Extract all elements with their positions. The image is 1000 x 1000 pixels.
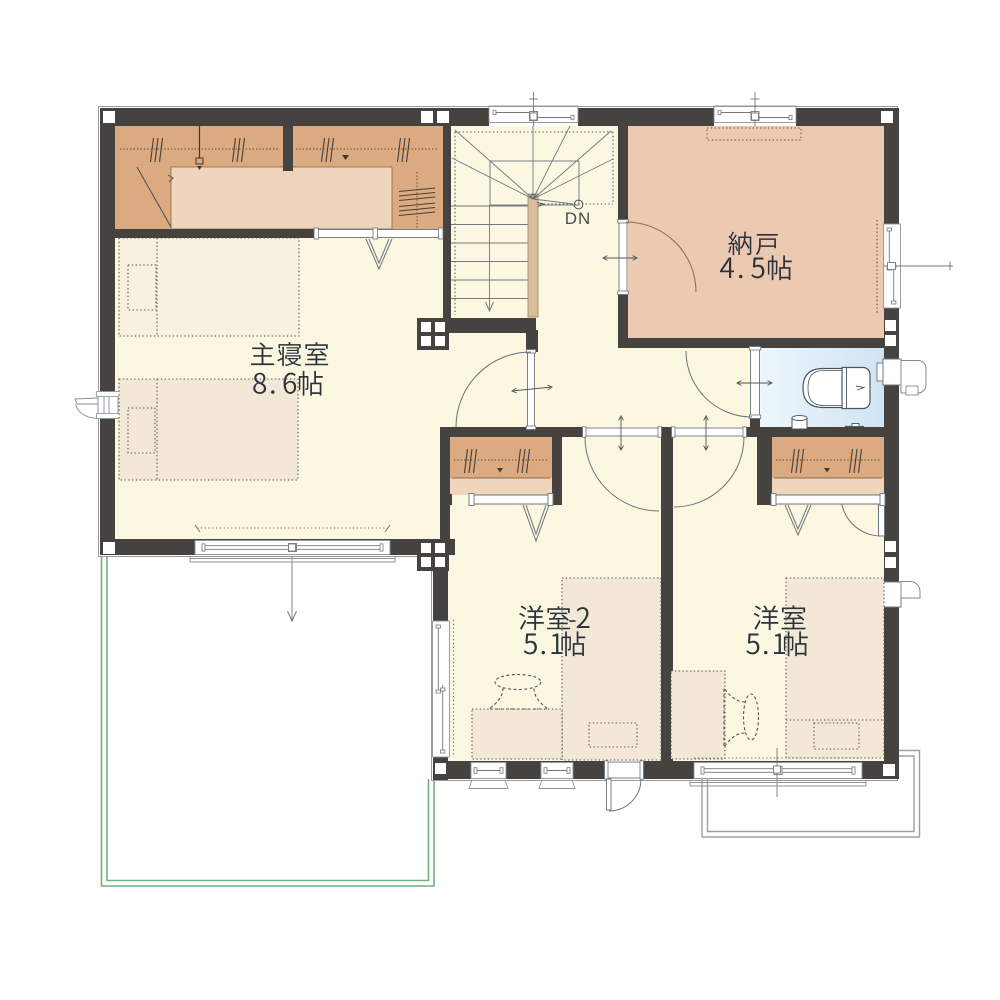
svg-text:DN: DN xyxy=(565,209,592,228)
